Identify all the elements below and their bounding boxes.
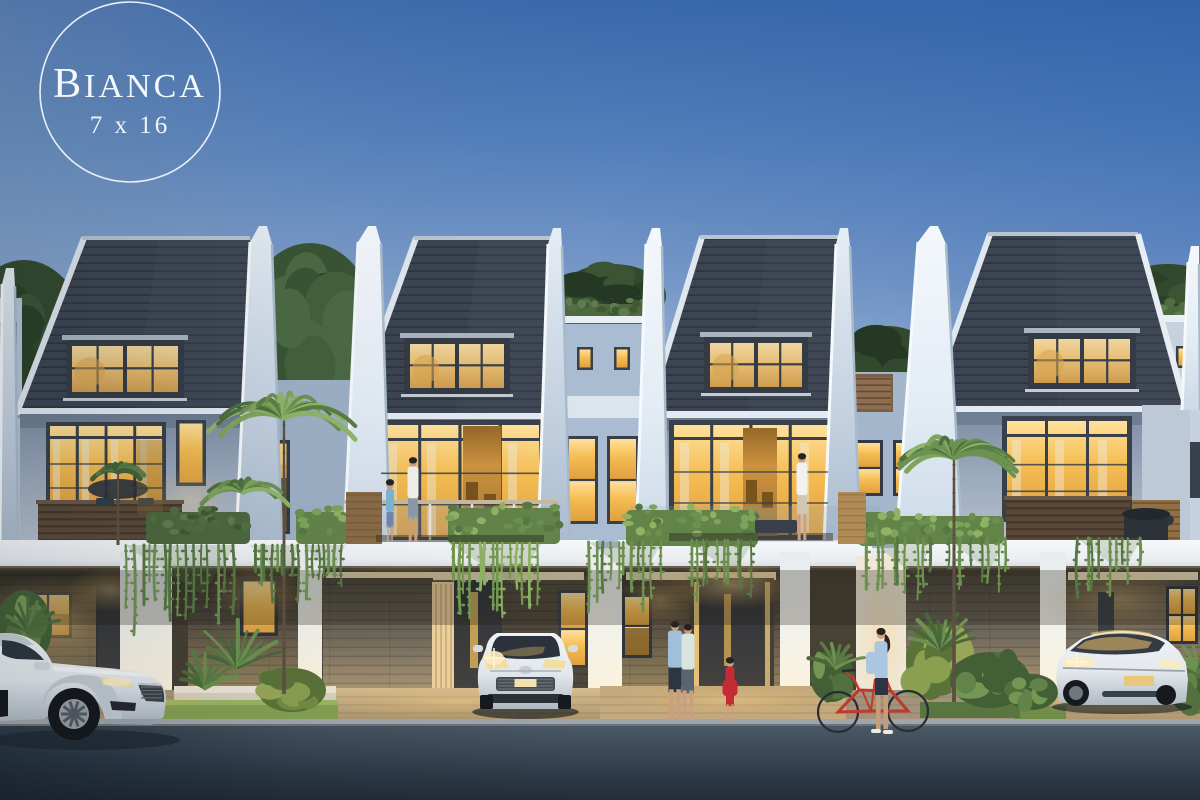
svg-text:7 x 16: 7 x 16 (90, 112, 171, 139)
svg-text:BIANCA: BIANCA (53, 61, 207, 107)
